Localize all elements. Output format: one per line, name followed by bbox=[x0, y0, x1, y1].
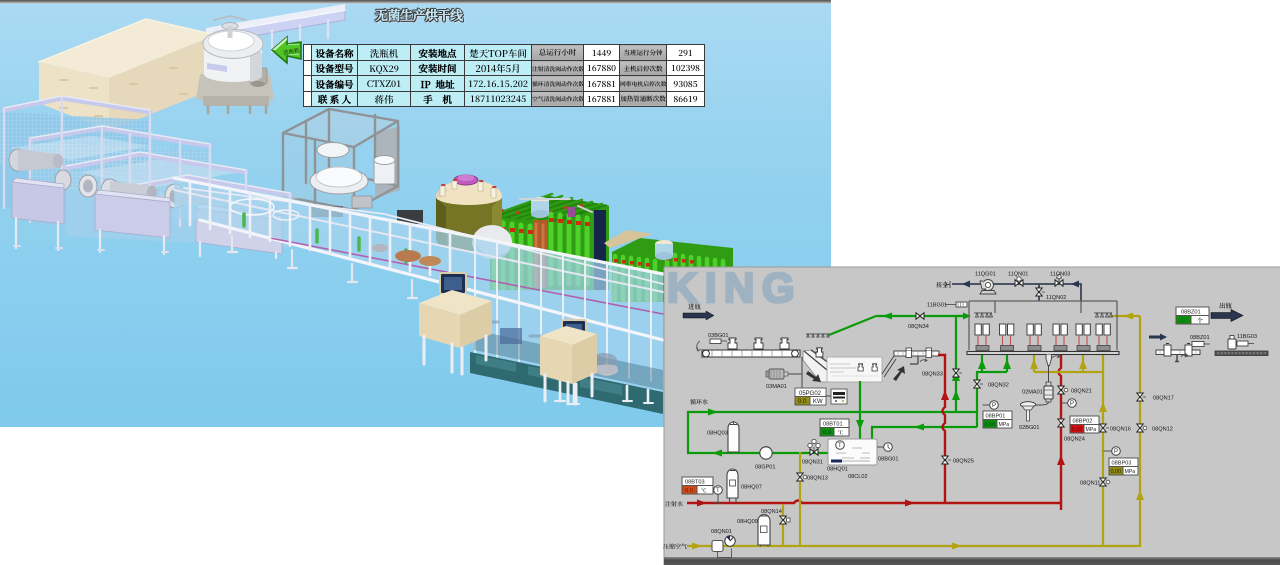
svg-text:08QN25: 08QN25 bbox=[953, 459, 974, 465]
svg-text:08BP03: 08BP03 bbox=[1112, 461, 1132, 467]
svg-text:11QG01: 11QG01 bbox=[975, 272, 996, 278]
svg-text:0.00: 0.00 bbox=[1111, 469, 1122, 475]
svg-text:08QN32: 08QN32 bbox=[988, 383, 1009, 389]
svg-text:0.0: 0.0 bbox=[685, 488, 693, 494]
svg-text:11QN03: 11QN03 bbox=[1050, 272, 1070, 278]
svg-text:0.00: 0.00 bbox=[1072, 427, 1083, 433]
svg-text:08HQ09: 08HQ09 bbox=[737, 519, 758, 525]
svg-text:08BG01: 08BG01 bbox=[878, 457, 899, 463]
svg-text:08QN21: 08QN21 bbox=[1071, 389, 1092, 395]
svg-text:08QN14: 08QN14 bbox=[761, 509, 782, 515]
svg-text:08QN01: 08QN01 bbox=[711, 529, 732, 535]
svg-text:08BT03: 08BT03 bbox=[685, 480, 705, 486]
svg-text:03BG01: 03BG01 bbox=[708, 333, 729, 339]
svg-text:08HQ07: 08HQ07 bbox=[741, 485, 762, 491]
svg-text:08QN31: 08QN31 bbox=[802, 460, 823, 466]
svg-text:03MA01: 03MA01 bbox=[766, 384, 787, 390]
svg-text:08BT01: 08BT01 bbox=[823, 422, 843, 428]
svg-text:循环水: 循环水 bbox=[690, 397, 708, 406]
svg-text:压缩空气: 压缩空气 bbox=[663, 542, 687, 551]
svg-text:08QN11: 08QN11 bbox=[1080, 481, 1100, 487]
svg-text:0.0: 0.0 bbox=[823, 430, 831, 436]
svg-text:MPa: MPa bbox=[1125, 469, 1136, 475]
svg-text:08BZ01: 08BZ01 bbox=[1190, 335, 1210, 341]
svg-text:接至: 接至 bbox=[936, 280, 948, 289]
svg-text:08QN24: 08QN24 bbox=[1064, 437, 1085, 443]
svg-text:08QN16: 08QN16 bbox=[1110, 427, 1131, 433]
svg-text:注射水: 注射水 bbox=[665, 499, 683, 508]
svg-text:11BG03: 11BG03 bbox=[1237, 334, 1257, 340]
svg-text:11QN01: 11QN01 bbox=[1008, 272, 1028, 278]
svg-text:08QN17: 08QN17 bbox=[1153, 396, 1174, 402]
svg-text:个: 个 bbox=[1197, 316, 1203, 325]
svg-text:08QN13: 08QN13 bbox=[807, 476, 828, 482]
svg-text:进瓶: 进瓶 bbox=[688, 302, 702, 311]
svg-text:08QN12: 08QN12 bbox=[1152, 427, 1173, 433]
svg-text:08QN33: 08QN33 bbox=[922, 372, 943, 378]
svg-text:02BG01: 02BG01 bbox=[1019, 425, 1040, 431]
svg-text:℃: ℃ bbox=[838, 429, 844, 437]
svg-text:℃: ℃ bbox=[701, 487, 707, 495]
svg-text:08GP01: 08GP01 bbox=[755, 465, 776, 471]
svg-text:0.00: 0.00 bbox=[985, 422, 996, 428]
svg-text:0.0: 0.0 bbox=[798, 399, 807, 405]
svg-text:08HQ01: 08HQ01 bbox=[827, 467, 848, 473]
svg-text:08HQ03: 08HQ03 bbox=[707, 431, 728, 437]
svg-text:08BP01: 08BP01 bbox=[986, 414, 1006, 420]
svg-text:02MA01: 02MA01 bbox=[1022, 390, 1043, 396]
svg-text:08QN34: 08QN34 bbox=[908, 324, 929, 330]
svg-text:08CL02: 08CL02 bbox=[848, 474, 868, 480]
svg-text:11BG01: 11BG01 bbox=[927, 303, 947, 309]
svg-text:出瓶: 出瓶 bbox=[1219, 301, 1233, 310]
svg-text:08BP02: 08BP02 bbox=[1073, 419, 1093, 425]
svg-text:11QN02: 11QN02 bbox=[1046, 295, 1066, 301]
svg-text:MPa: MPa bbox=[999, 422, 1010, 428]
svg-text:KW: KW bbox=[813, 399, 823, 405]
svg-text:MPa: MPa bbox=[1086, 427, 1097, 433]
